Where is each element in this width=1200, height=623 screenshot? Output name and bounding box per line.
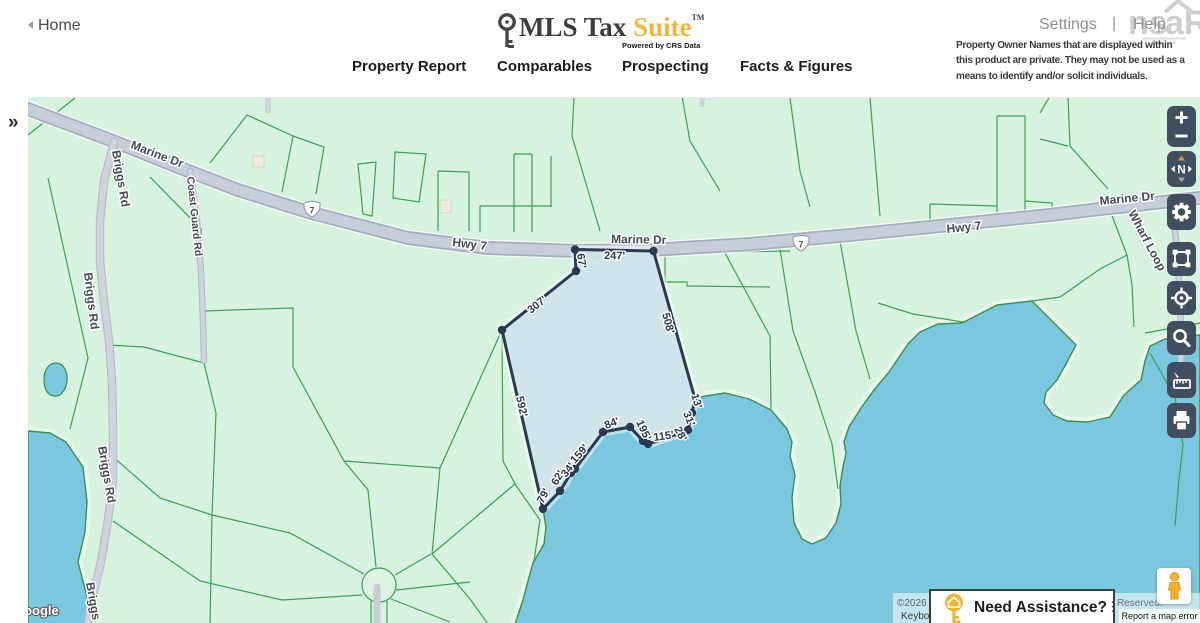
svg-text:Google: Google (28, 603, 59, 618)
svg-text:aR: aR (1165, 4, 1200, 42)
svg-text:247': 247' (604, 250, 626, 262)
svg-text:67': 67' (574, 253, 588, 270)
svg-text:Marine Dr: Marine Dr (611, 232, 667, 247)
svg-text:7: 7 (798, 240, 803, 250)
svg-text:N: N (1177, 165, 1185, 177)
svg-text:7: 7 (309, 206, 314, 216)
